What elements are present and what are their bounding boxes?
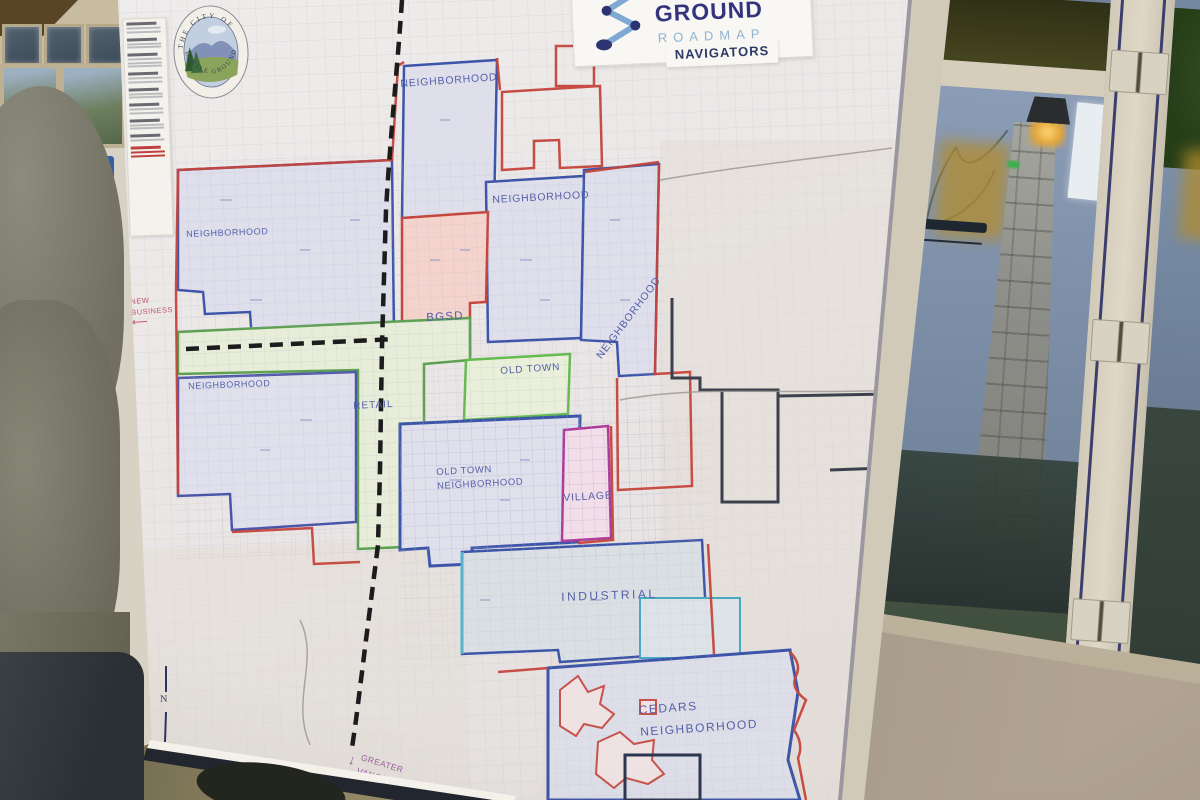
- person-jeans: [0, 652, 144, 800]
- transom-window: [44, 24, 84, 66]
- exit-sign: [1007, 160, 1019, 168]
- transom-window: [2, 24, 42, 66]
- door-hinge: [1109, 49, 1170, 95]
- door-hinge: [1090, 319, 1151, 365]
- door-hinge: [1070, 598, 1131, 644]
- photo-of-map-board: THE CITY OF BATTLE GROUND BATTLE GROUND …: [0, 0, 1200, 800]
